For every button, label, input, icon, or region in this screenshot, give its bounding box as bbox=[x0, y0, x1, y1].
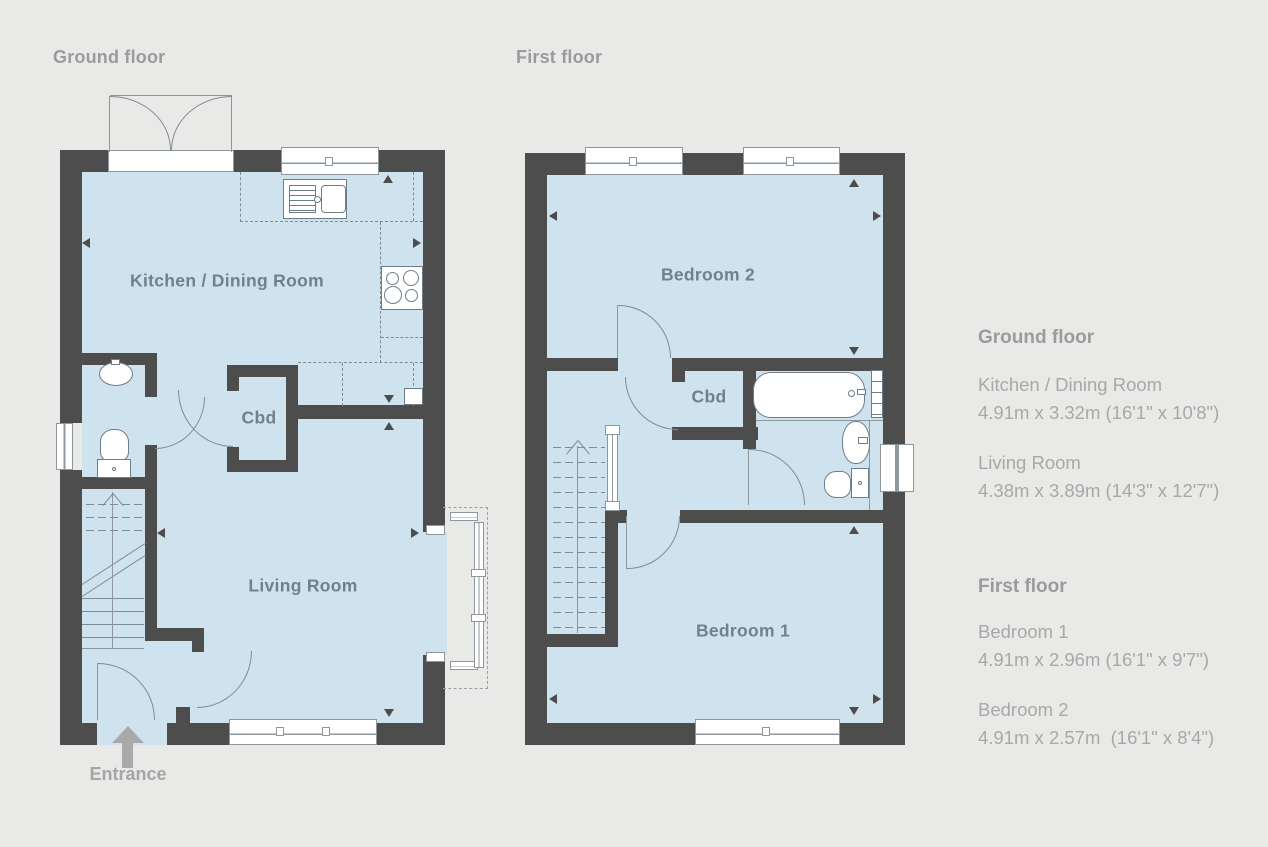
entrance-arrow-icon bbox=[112, 726, 144, 743]
banister-post bbox=[605, 501, 620, 511]
wall bbox=[672, 358, 883, 371]
bay-window-joint bbox=[471, 614, 486, 622]
room-label-cbd-ground: Cbd bbox=[242, 408, 277, 429]
wall bbox=[145, 353, 157, 397]
wall bbox=[883, 153, 905, 447]
floorplan-page: Ground floor bbox=[0, 0, 1268, 847]
window-tick bbox=[762, 727, 770, 736]
sink-drainer bbox=[289, 185, 316, 213]
wall bbox=[227, 447, 239, 460]
first-floor-plan-title: First floor bbox=[516, 47, 602, 68]
french-door-header-line bbox=[110, 95, 232, 96]
stairs bbox=[82, 492, 144, 540]
entrance-label: Entrance bbox=[89, 764, 166, 785]
room-label-bedroom2: Bedroom 2 bbox=[661, 265, 755, 286]
toilet-flush bbox=[858, 481, 862, 485]
wall bbox=[60, 150, 82, 423]
stairs-center-line bbox=[112, 492, 113, 648]
toilet-bowl bbox=[824, 471, 851, 498]
window-cap bbox=[426, 652, 445, 662]
panel-room-name: Kitchen / Dining Room bbox=[978, 374, 1162, 396]
panel-room-dims: 4.91m x 2.96m (16'1" x 9'7") bbox=[978, 649, 1209, 671]
wc-basin-tap bbox=[111, 359, 120, 365]
panel-room-name: Bedroom 2 bbox=[978, 699, 1069, 721]
room-label-living: Living Room bbox=[248, 576, 357, 597]
panel-heading-first: First floor bbox=[978, 576, 1067, 598]
bay-window-pane bbox=[474, 522, 484, 572]
counter-line bbox=[298, 362, 423, 363]
wall bbox=[60, 470, 82, 745]
window-tick bbox=[325, 157, 333, 166]
window bbox=[229, 719, 377, 745]
stairs-center-line bbox=[577, 446, 578, 633]
window-cap bbox=[426, 525, 445, 535]
dimension-arrow bbox=[383, 175, 393, 183]
bathroom-line bbox=[756, 420, 883, 421]
panel-room-dims: 4.38m x 3.89m (14'3" x 12'7") bbox=[978, 480, 1219, 502]
dimension-arrow bbox=[873, 694, 881, 704]
bathtub-tap-handle bbox=[857, 389, 866, 395]
banister bbox=[607, 427, 618, 511]
toilet-flush bbox=[112, 467, 116, 471]
window-tick bbox=[629, 157, 637, 166]
dimension-arrow bbox=[873, 211, 881, 221]
wall bbox=[167, 723, 230, 745]
counter-line bbox=[342, 363, 343, 406]
stairs bbox=[82, 586, 144, 648]
wall bbox=[683, 153, 745, 175]
sink-bowl bbox=[321, 185, 346, 213]
room-label-bedroom1: Bedroom 1 bbox=[696, 621, 790, 642]
wall bbox=[145, 628, 204, 641]
bathtub-tap bbox=[848, 390, 855, 397]
room-label-kitchen: Kitchen / Dining Room bbox=[130, 271, 324, 292]
wall bbox=[547, 358, 618, 371]
panel-room-name: Bedroom 1 bbox=[978, 621, 1069, 643]
wall bbox=[298, 405, 423, 419]
door-arc bbox=[110, 96, 171, 150]
sink-tap bbox=[314, 196, 321, 203]
wall bbox=[145, 445, 157, 641]
wall bbox=[547, 634, 618, 647]
hob-burner bbox=[384, 286, 402, 304]
dimension-arrow bbox=[384, 709, 394, 717]
dimension-arrow bbox=[384, 395, 394, 403]
wall bbox=[883, 492, 905, 745]
room-label-cbd-first: Cbd bbox=[692, 387, 727, 408]
door-leaf bbox=[617, 305, 618, 358]
hob-burner bbox=[405, 289, 418, 302]
bay-window-pane bbox=[474, 574, 484, 618]
wall bbox=[525, 723, 697, 745]
dimension-arrow bbox=[157, 528, 165, 538]
door-leaf bbox=[748, 449, 749, 505]
dimension-arrow bbox=[413, 238, 421, 248]
dimension-arrow bbox=[849, 347, 859, 355]
panel-room-dims: 4.91m x 2.57m (16'1" x 8'4") bbox=[978, 727, 1214, 749]
wall bbox=[176, 707, 190, 723]
counter-line bbox=[381, 337, 423, 338]
boiler-unit bbox=[404, 388, 423, 405]
basin-tap bbox=[858, 437, 868, 444]
door-arc bbox=[171, 96, 232, 150]
wall bbox=[227, 460, 298, 472]
wall bbox=[680, 510, 883, 523]
wc-basin bbox=[99, 362, 133, 386]
dimension-arrow bbox=[849, 526, 859, 534]
ground-floor-plan-title: Ground floor bbox=[53, 47, 165, 68]
window-tick bbox=[276, 727, 284, 736]
dimension-arrow bbox=[82, 238, 90, 248]
french-door-sill bbox=[108, 150, 234, 172]
bay-window-pane bbox=[474, 620, 484, 668]
dimension-arrow bbox=[849, 707, 859, 715]
dimension-arrow bbox=[849, 179, 859, 187]
panel-heading-ground: Ground floor bbox=[978, 327, 1094, 349]
bay-window-pane bbox=[450, 512, 478, 521]
towel-rail bbox=[871, 370, 883, 418]
wall bbox=[82, 477, 145, 489]
door-leaf bbox=[97, 663, 98, 720]
wall bbox=[286, 365, 298, 472]
wall bbox=[232, 150, 283, 172]
toilet-bowl bbox=[100, 429, 129, 462]
bay-window-joint bbox=[471, 569, 486, 577]
window bbox=[880, 444, 914, 492]
wall bbox=[227, 365, 239, 391]
counter-line bbox=[240, 221, 423, 222]
hob-burner bbox=[386, 272, 399, 285]
wall bbox=[525, 153, 547, 745]
banister-post bbox=[605, 425, 620, 435]
window-tick bbox=[322, 727, 330, 736]
window bbox=[56, 423, 73, 470]
stairs-edge bbox=[82, 648, 144, 649]
dimension-arrow bbox=[549, 694, 557, 704]
door-leaf bbox=[626, 516, 627, 569]
hob-burner bbox=[403, 270, 419, 286]
dimension-arrow bbox=[411, 528, 419, 538]
dimension-arrow bbox=[549, 211, 557, 221]
wall bbox=[423, 150, 445, 532]
counter-line bbox=[413, 172, 414, 221]
wall bbox=[743, 429, 756, 449]
wall bbox=[423, 655, 445, 745]
panel-room-dims: 4.91m x 3.32m (16'1" x 10'8") bbox=[978, 402, 1219, 424]
wall bbox=[605, 510, 618, 647]
dimension-arrow bbox=[384, 422, 394, 430]
window-tick bbox=[786, 157, 794, 166]
panel-room-name: Living Room bbox=[978, 452, 1081, 474]
counter-line bbox=[240, 172, 241, 222]
